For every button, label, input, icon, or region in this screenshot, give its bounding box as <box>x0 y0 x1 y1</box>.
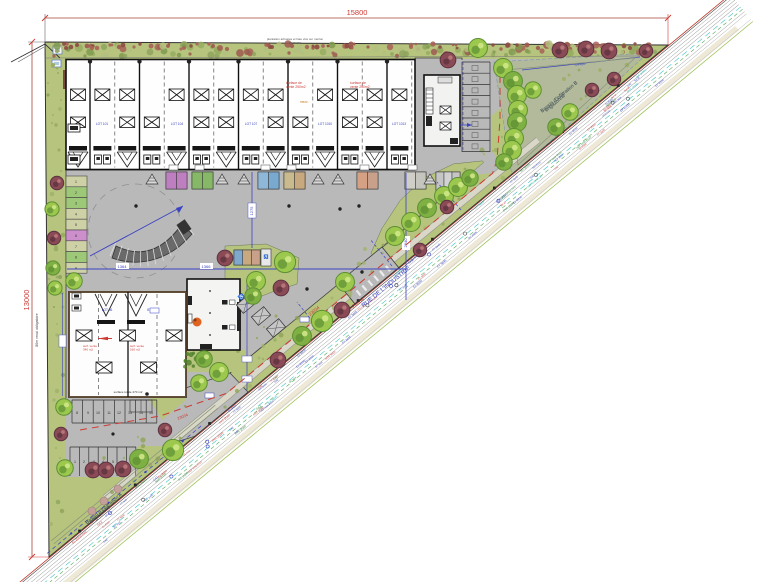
svg-text:5: 5 <box>75 223 77 227</box>
svg-text:9: 9 <box>87 411 89 415</box>
svg-text:mezz.: mezz. <box>300 100 309 104</box>
svg-text:vente 250m2: vente 250m2 <box>286 85 306 89</box>
svg-text:vente 250m2: vente 250m2 <box>350 85 370 89</box>
svg-text:13000: 13000 <box>22 290 31 311</box>
svg-text:10: 10 <box>96 411 100 415</box>
svg-text:8: 8 <box>75 256 77 260</box>
svg-text:6: 6 <box>75 234 77 238</box>
svg-text:♿: ♿ <box>264 254 269 259</box>
svg-text:8: 8 <box>76 411 78 415</box>
svg-text:LOT 1010: LOT 1010 <box>318 122 332 126</box>
svg-text:LOT 1013: LOT 1013 <box>392 122 406 126</box>
svg-text:80m recul obligatoire: 80m recul obligatoire <box>35 313 39 346</box>
svg-text:160 m2: 160 m2 <box>130 348 140 352</box>
svg-text:1366: 1366 <box>202 264 212 269</box>
svg-text:2: 2 <box>83 460 85 464</box>
svg-text:340 m2: 340 m2 <box>83 348 93 352</box>
svg-text:1275: 1275 <box>249 206 254 216</box>
svg-text:1364: 1364 <box>118 264 128 269</box>
svg-text:4: 4 <box>75 212 77 216</box>
svg-text:1: 1 <box>74 460 76 464</box>
svg-text:1: 1 <box>75 180 77 184</box>
svg-text:12: 12 <box>117 411 121 415</box>
svg-text:LOT 101: LOT 101 <box>96 122 109 126</box>
svg-text:LOT 86: LOT 86 <box>102 308 113 312</box>
svg-text:15800: 15800 <box>347 8 368 17</box>
svg-text:3: 3 <box>75 202 77 206</box>
svg-text:2: 2 <box>75 191 77 195</box>
svg-text:LOT 104: LOT 104 <box>171 122 184 126</box>
svg-text:paysager: paysager <box>289 41 301 45</box>
svg-text:LOT 107: LOT 107 <box>245 122 258 126</box>
svg-text:9: 9 <box>75 266 77 270</box>
svg-text:surface totale 470 m2: surface totale 470 m2 <box>114 390 143 394</box>
svg-text:5: 5 <box>112 460 114 464</box>
svg-text:15: 15 <box>149 411 153 415</box>
svg-text:7: 7 <box>75 245 77 249</box>
svg-text:11: 11 <box>107 411 111 415</box>
